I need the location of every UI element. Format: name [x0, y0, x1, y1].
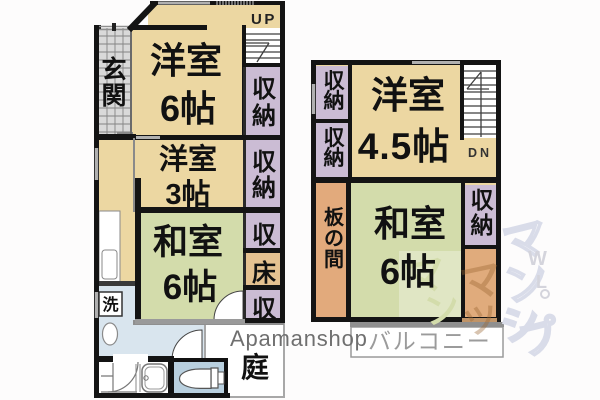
svg-text:の: の [324, 228, 344, 250]
svg-text:床: 床 [252, 259, 276, 287]
svg-text:納: 納 [471, 212, 494, 238]
svg-text:収: 収 [471, 187, 495, 213]
svg-text:納: 納 [252, 174, 276, 202]
svg-text:DN: DN [468, 146, 492, 160]
svg-text:関: 関 [101, 82, 126, 110]
svg-text:納: 納 [252, 102, 276, 130]
svg-text:6帖: 6帖 [160, 88, 216, 129]
svg-text:納: 納 [324, 146, 345, 170]
svg-text:洗: 洗 [102, 295, 118, 314]
svg-text:収: 収 [252, 296, 277, 323]
svg-text:6帖: 6帖 [163, 268, 217, 307]
svg-text:6帖: 6帖 [380, 251, 436, 292]
svg-text:収: 収 [252, 222, 277, 249]
svg-text:UP: UP [251, 11, 277, 28]
svg-text:納: 納 [324, 89, 345, 113]
svg-text:収: 収 [252, 149, 277, 176]
svg-text:3帖: 3帖 [165, 178, 210, 211]
svg-text:洋室: 洋室 [371, 74, 445, 116]
svg-text:Apamanshop: Apamanshop [230, 326, 368, 351]
svg-text:L: L [536, 272, 547, 292]
svg-text:玄: 玄 [101, 55, 126, 84]
svg-text:和室: 和室 [153, 222, 223, 262]
svg-text:4.5帖: 4.5帖 [358, 126, 450, 167]
svg-text:庭: 庭 [241, 351, 269, 383]
svg-text:和室: 和室 [374, 203, 446, 244]
svg-text:収: 収 [252, 76, 277, 103]
svg-text:W: W [528, 248, 547, 270]
svg-text:洋室: 洋室 [159, 142, 217, 176]
svg-text:洋室: 洋室 [150, 40, 222, 81]
svg-text:板: 板 [324, 205, 345, 229]
svg-text:間: 間 [324, 248, 344, 271]
